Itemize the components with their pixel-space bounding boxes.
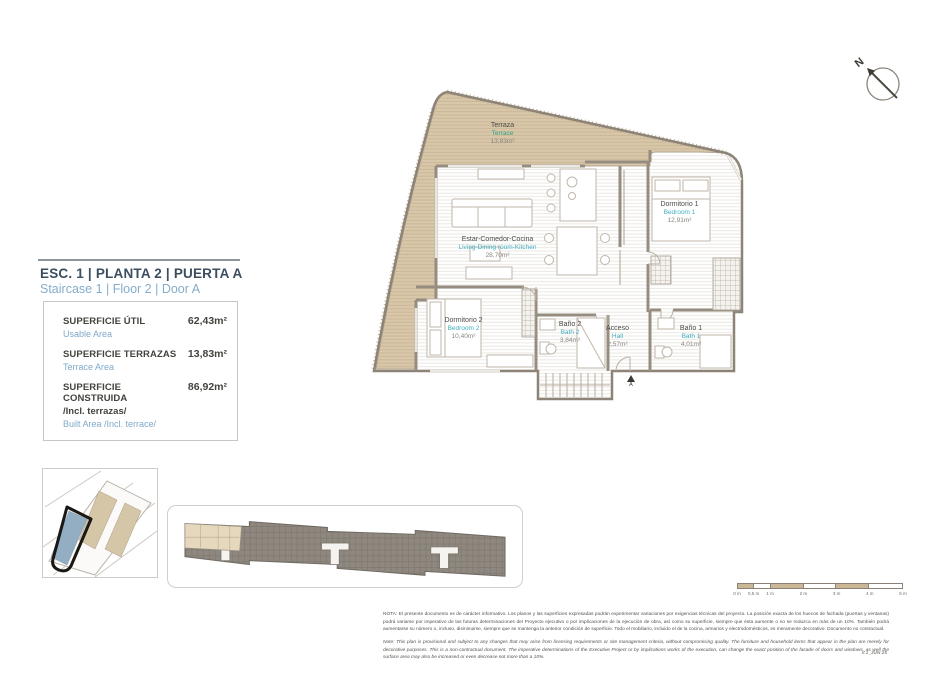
scale-segment — [738, 584, 754, 588]
chair — [601, 256, 610, 265]
highlighted-apartment — [185, 524, 242, 551]
area-value: 86,92m² — [188, 381, 227, 393]
stool — [547, 204, 555, 212]
entrance-marker: A — [620, 375, 642, 388]
scale-segment — [836, 584, 869, 588]
legal-notes: NOTA: El presente documento es de caráct… — [383, 611, 889, 662]
compass: N — [845, 50, 915, 112]
note-english: Note: This plan is provisional and subje… — [383, 639, 889, 662]
room-name-es: Estar-Comedor-Cocina — [420, 236, 575, 244]
kitchen-island — [560, 169, 596, 221]
room-name-es: Dormitorio 1 — [632, 201, 727, 209]
scale-tick-label: 3 m — [833, 591, 841, 596]
table-row-built-area: SUPERFICIE CONSTRUIDA 86,92m² /Incl. ter… — [63, 381, 227, 429]
scale-segment — [869, 584, 902, 588]
floor-key-plan-drawing — [168, 506, 522, 587]
floor-plan-sheet: { "plan": { "title": "ESC. 1 | PLANTA 2 … — [0, 0, 935, 682]
room-label-dormitorio-2: Dormitorio 2 Bedroom 2 10,40m² — [416, 317, 511, 341]
room-name-en: Hall — [590, 333, 645, 341]
room-name-en: Terrace — [455, 130, 550, 138]
note-spanish: NOTA: El presente documento es de caráct… — [383, 611, 889, 634]
floor-key-plan — [167, 505, 523, 588]
entrance-arrow-icon — [627, 375, 635, 382]
page-subtitle: Staircase 1 | Floor 2 | Door A — [40, 282, 200, 296]
room-area: 28,70m² — [420, 252, 575, 260]
room-name-en: Bedroom 2 — [416, 325, 511, 333]
room-area: 12,91m² — [632, 217, 727, 225]
sideboard-bottom — [466, 267, 512, 279]
area-label-en: Terrace Area — [63, 362, 227, 372]
room-name-en: Bath 1 — [660, 333, 722, 341]
area-label-es: SUPERFICIE ÚTIL — [63, 316, 145, 327]
scale-tick-label: 1 m — [766, 591, 774, 596]
stool — [547, 174, 555, 182]
scale-tick-label: 0 m — [733, 591, 741, 596]
room-area: 2,57m² — [590, 341, 645, 349]
area-value: 13,83m² — [188, 348, 227, 360]
toilet-2 — [546, 344, 556, 354]
room-name-es: Baño 1 — [660, 325, 722, 333]
scale-tick-label: 5 m — [899, 591, 907, 596]
area-label-es: SUPERFICIE TERRAZAS — [63, 349, 176, 360]
room-label-estar-comedor-cocina: Estar-Comedor-Cocina Living-Dining room-… — [420, 236, 575, 260]
room-label-acceso: Acceso Hall 2,57m² — [590, 325, 645, 349]
site-plan-drawing — [43, 469, 157, 577]
room-label-bano-1: Baño 1 Bath 1 4,01m² — [660, 325, 722, 349]
scale-tick-label: 4 m — [866, 591, 874, 596]
room-area: 4,01m² — [660, 341, 722, 349]
scale-segment — [804, 584, 837, 588]
scale-tick-label: 2 m — [800, 591, 808, 596]
room-name-en: Living-Dining room-Kitchen — [420, 244, 575, 252]
north-arrow-icon: N — [845, 50, 915, 112]
version-label: V.1_JUN 25 — [861, 651, 887, 656]
entrance-door-letter: A — [620, 382, 642, 388]
wardrobe-2 — [487, 355, 533, 367]
scale-segment — [754, 584, 770, 588]
room-label-dormitorio-1: Dormitorio 1 Bedroom 1 12,91m² — [632, 201, 727, 225]
table-row-usable-area: SUPERFICIE ÚTIL 62,43m² Usable Area — [63, 315, 227, 339]
surface-areas-table: SUPERFICIE ÚTIL 62,43m² Usable Area SUPE… — [43, 301, 238, 441]
area-label-es: SUPERFICIE CONSTRUIDA — [63, 382, 188, 404]
room-name-es: Acceso — [590, 325, 645, 333]
scale-bar-track — [737, 583, 903, 589]
compass-north-label: N — [853, 56, 867, 70]
stool — [547, 189, 555, 197]
scale-segment — [771, 584, 804, 588]
scale-bar: 0 m 0,5 m 1 m 2 m 3 m 4 m 5 m — [737, 583, 903, 601]
room-name-en: Bedroom 1 — [632, 209, 727, 217]
area-label-es-2: /Incl. terrazas/ — [63, 406, 227, 417]
area-value: 62,43m² — [188, 315, 227, 327]
area-label-en: Built Area /Incl. terrace/ — [63, 419, 227, 429]
site-location-key-plan — [42, 468, 158, 578]
room-label-terraza: Terraza Terrace 13,83m² — [455, 122, 550, 146]
room-area: 10,40m² — [416, 333, 511, 341]
area-label-en: Usable Area — [63, 329, 227, 339]
room-name-es: Dormitorio 2 — [416, 317, 511, 325]
sofa — [452, 199, 532, 227]
page: Terraza Terrace 13,83m² Estar-Comedor-Co… — [0, 0, 935, 682]
room-area: 13,83m² — [455, 138, 550, 146]
room-name-es: Terraza — [455, 122, 550, 130]
table-row-terrace-area: SUPERFICIE TERRAZAS 13,83m² Terrace Area — [63, 348, 227, 372]
title-divider — [38, 259, 240, 261]
sideboard-top — [478, 169, 524, 179]
page-title: ESC. 1 | PLANTA 2 | PUERTA A — [40, 266, 242, 281]
chair — [601, 234, 610, 243]
scale-tick-label: 0,5 m — [748, 591, 759, 596]
